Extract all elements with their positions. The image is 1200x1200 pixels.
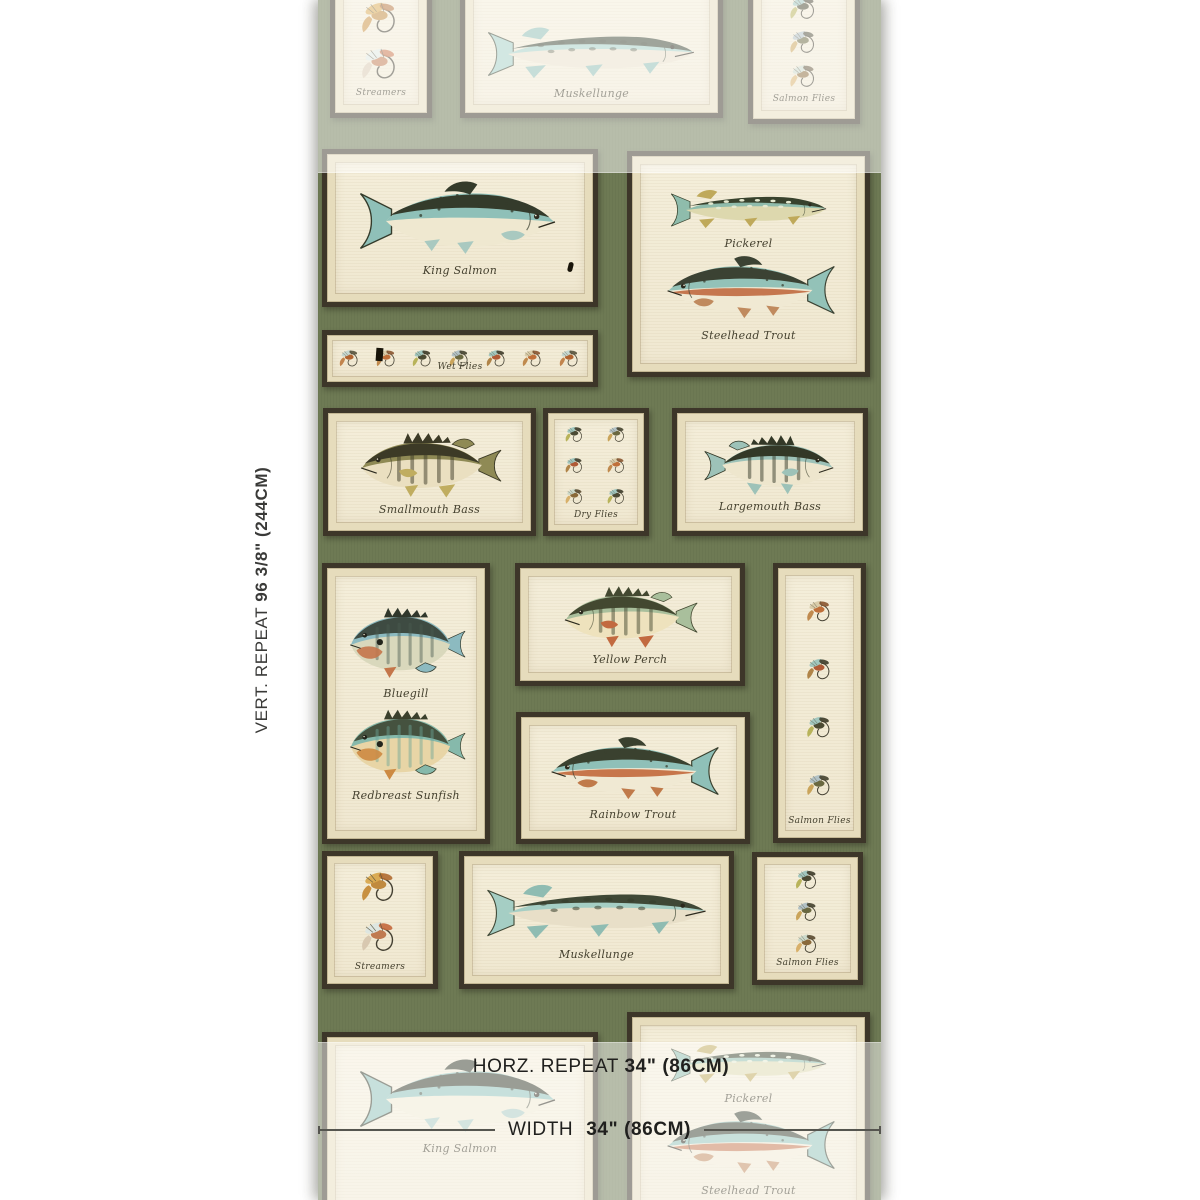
horizontal-repeat-annotation: HORZ. REPEAT 34" (86CM) — [473, 1056, 730, 1078]
caption-largemouth-bass: Largemouth Bass — [719, 501, 821, 513]
caption-wet-flies: Wet Flies — [438, 363, 483, 373]
dry-fly-icon — [564, 455, 586, 477]
caption-salmon-flies: Salmon Flies — [788, 817, 851, 827]
salmon-fly-icon — [794, 931, 821, 958]
salmon-fly-icon — [788, 61, 820, 93]
panel-muskellunge: Muskellunge — [459, 851, 734, 989]
caption-redbreast-sunfish: Redbreast Sunfish — [352, 790, 460, 802]
salmon-fly-icon — [788, 0, 820, 25]
panel-dry-flies: Dry Flies — [543, 408, 649, 536]
salmon-fly-icon — [805, 713, 835, 743]
caption-king-salmon: King Salmon — [423, 265, 497, 277]
wet-fly-icon — [411, 347, 435, 371]
caption-steelhead-trout: Steelhead Trout — [701, 330, 795, 342]
horizontal-repeat-value: 34" (86CM) — [624, 1056, 729, 1077]
caption-muskellunge: Muskellunge — [559, 949, 634, 961]
wet-fly-icon — [521, 347, 545, 371]
muskellunge-fish — [483, 879, 711, 947]
caption-steelhead-trout: Steelhead Trout — [701, 1185, 795, 1197]
streamer-fly-icon — [359, 43, 403, 87]
wallpaper-product-image: VERT. REPEAT 96 3/8" (244CM) Streamers M… — [0, 0, 1200, 1200]
panel-muskellunge-top: Muskellunge — [460, 0, 723, 118]
largemouth-bass-fish — [702, 431, 838, 499]
width-dimension-line-left — [318, 1129, 495, 1131]
caption-pickerel: Pickerel — [725, 238, 773, 250]
panel-salmon-flies-top: Salmon Flies — [748, 0, 860, 124]
caption-king-salmon: King Salmon — [423, 1143, 497, 1155]
panel-largemouth-bass: Largemouth Bass — [672, 408, 868, 536]
wet-fly-icon — [558, 347, 582, 371]
dry-fly-icon — [564, 486, 586, 508]
rainbow-trout-fish — [543, 735, 723, 807]
panel-pickerel-steelhead-bottom: Pickerel Steelhead Trout — [627, 1012, 870, 1200]
print-speck — [376, 348, 384, 361]
salmon-fly-icon — [805, 771, 835, 801]
dry-fly-icon — [606, 424, 628, 446]
streamer-fly-icon — [359, 917, 401, 959]
yellow-perch-fish — [560, 582, 700, 652]
caption-muskellunge: Muskellunge — [554, 88, 629, 100]
panel-yellow-perch: Yellow Perch — [515, 563, 745, 686]
panel-rainbow-trout: Rainbow Trout — [516, 712, 750, 844]
vertical-repeat-annotation: VERT. REPEAT 96 3/8" (244CM) — [252, 467, 272, 734]
caption-streamers: Streamers — [356, 89, 406, 99]
caption-dry-flies: Dry Flies — [574, 511, 618, 521]
streamer-fly-icon — [359, 0, 403, 41]
caption-streamers: Streamers — [355, 963, 405, 973]
horizontal-repeat-label: HORZ. REPEAT — [473, 1056, 619, 1077]
caption-rainbow-trout: Rainbow Trout — [590, 809, 677, 821]
caption-bluegill: Bluegill — [383, 688, 428, 700]
panel-streamers: Streamers — [322, 851, 438, 989]
salmon-fly-icon — [805, 597, 835, 627]
pickerel-fish — [668, 186, 830, 234]
bluegill-fish — [344, 605, 468, 682]
width-value: 34" (86CM) — [586, 1119, 691, 1141]
salmon-fly-icon — [794, 867, 821, 894]
steelhead-trout-fish — [659, 254, 839, 326]
vertical-repeat-label: VERT. REPEAT — [252, 607, 271, 733]
muskellunge-fish — [484, 22, 699, 86]
width-label: WIDTH — [508, 1119, 573, 1141]
width-annotation: WIDTH 34" (86CM) — [318, 1120, 881, 1140]
redbreast-sunfish-fish — [344, 707, 468, 784]
vertical-repeat-value: 96 3/8" (244CM) — [252, 467, 271, 602]
panel-bluegill-redbreast: Bluegill Redbreast Sunfish — [322, 563, 490, 844]
panel-pickerel-steelhead: Pickerel Steelhead Trout — [627, 151, 870, 377]
panel-smallmouth-bass: Smallmouth Bass — [323, 408, 536, 536]
king-salmon-fish — [355, 179, 565, 263]
dry-fly-icon — [564, 424, 586, 446]
wet-fly-icon — [338, 347, 362, 371]
wallpaper-strip: Streamers Muskellunge Salmon Flies King … — [318, 0, 881, 1200]
caption-smallmouth-bass: Smallmouth Bass — [379, 504, 480, 516]
panel-wet-flies: Wet Flies — [322, 330, 598, 387]
smallmouth-bass-fish — [356, 428, 504, 502]
salmon-fly-icon — [805, 655, 835, 685]
panel-salmon-flies-small: Salmon Flies — [752, 852, 863, 985]
dry-fly-icon — [606, 486, 628, 508]
streamer-fly-icon — [359, 867, 401, 909]
panel-salmon-flies-tall: Salmon Flies — [773, 563, 866, 843]
caption-salmon-flies: Salmon Flies — [776, 959, 839, 969]
caption-salmon-flies: Salmon Flies — [773, 95, 836, 105]
width-dimension-line-right — [704, 1129, 881, 1131]
wet-fly-icon — [485, 347, 509, 371]
caption-pickerel: Pickerel — [725, 1093, 773, 1105]
salmon-fly-icon — [794, 899, 821, 926]
panel-streamers-top: Streamers — [330, 0, 432, 118]
salmon-fly-icon — [788, 27, 820, 59]
caption-yellow-perch: Yellow Perch — [593, 654, 668, 666]
panel-king-salmon: King Salmon — [322, 149, 598, 307]
dry-fly-icon — [606, 455, 628, 477]
